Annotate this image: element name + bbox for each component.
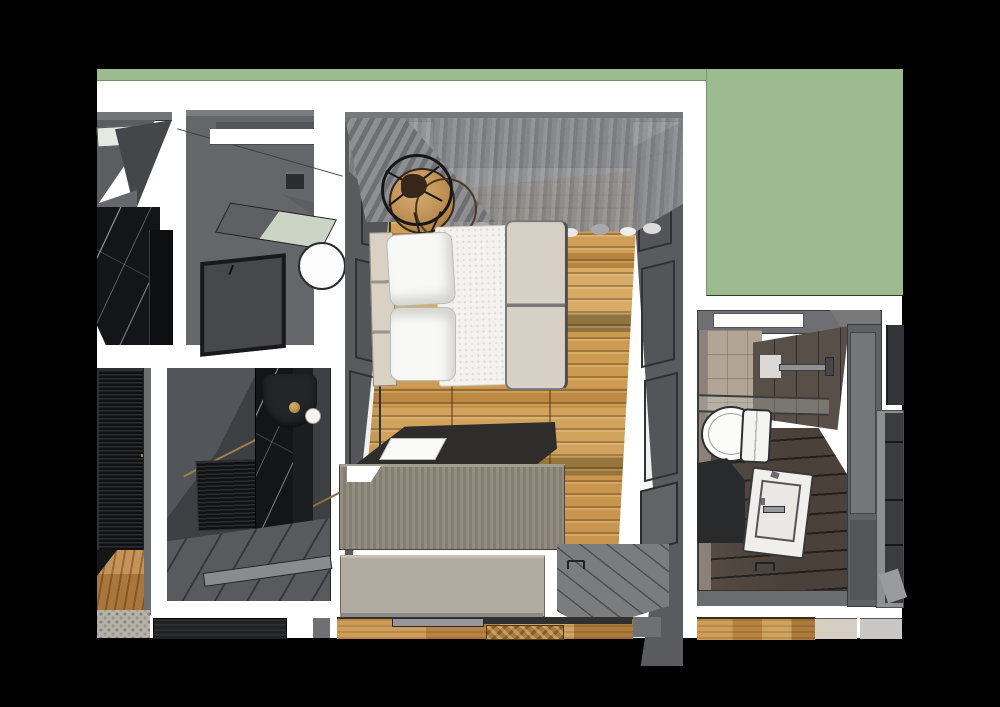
side-jamb xyxy=(143,368,151,615)
bed xyxy=(369,224,565,393)
pillow xyxy=(390,307,456,381)
corner-beige-piece xyxy=(815,618,857,639)
mosaic-floor xyxy=(97,610,150,638)
wall-cap xyxy=(97,112,172,121)
round-mirror xyxy=(298,242,346,290)
wall-panel xyxy=(644,372,678,482)
console-slat xyxy=(392,618,484,627)
dresser-beige xyxy=(340,555,545,617)
shelf-line xyxy=(885,441,903,443)
door-leaf xyxy=(850,332,876,514)
room-louver-closet xyxy=(97,368,150,638)
wall-box xyxy=(286,172,304,189)
console-dark-slab xyxy=(484,618,632,624)
floor-handle xyxy=(567,560,585,569)
bath-console-strip xyxy=(697,617,815,640)
marble-column xyxy=(149,230,173,345)
pillow xyxy=(386,231,456,307)
shelf-line xyxy=(885,499,903,501)
wall-cap xyxy=(186,110,314,116)
wardrobe-right-shelves xyxy=(876,410,904,608)
wall-lower xyxy=(850,520,876,600)
dark-mat-strip xyxy=(153,618,287,640)
gray-strip xyxy=(313,618,330,638)
gold-knob xyxy=(289,402,300,413)
room-closet-top-left xyxy=(97,112,172,345)
bottom-wall xyxy=(697,590,847,606)
corner-gray-piece xyxy=(860,618,902,639)
wall-panel xyxy=(641,260,675,368)
shelf-edge xyxy=(216,122,314,129)
floor-handle xyxy=(755,562,775,571)
louver-panel xyxy=(97,368,148,554)
room-bathroom xyxy=(697,310,880,605)
door-latch xyxy=(761,498,765,505)
foot-runner xyxy=(505,220,568,390)
door-handle xyxy=(763,506,785,513)
shelf-line xyxy=(885,544,903,546)
louver-cabinet xyxy=(196,459,258,531)
tray-on-top xyxy=(379,438,447,460)
framed-mirror xyxy=(200,253,286,357)
render-viewport[interactable] xyxy=(0,0,1000,707)
room-dark-ensuite xyxy=(167,368,331,601)
arm-bracket xyxy=(825,357,834,376)
toilet-lid xyxy=(740,408,773,463)
wardrobe-right-top xyxy=(886,325,904,405)
door-recess-panel xyxy=(640,481,678,552)
light-cove xyxy=(210,129,314,145)
light-niche xyxy=(713,313,804,328)
room-dressing xyxy=(186,110,330,345)
shower-arm xyxy=(779,364,829,371)
herringbone-patch xyxy=(486,625,564,640)
lawn-block xyxy=(706,69,903,296)
gray-segment xyxy=(633,617,661,637)
white-globe xyxy=(305,408,321,424)
